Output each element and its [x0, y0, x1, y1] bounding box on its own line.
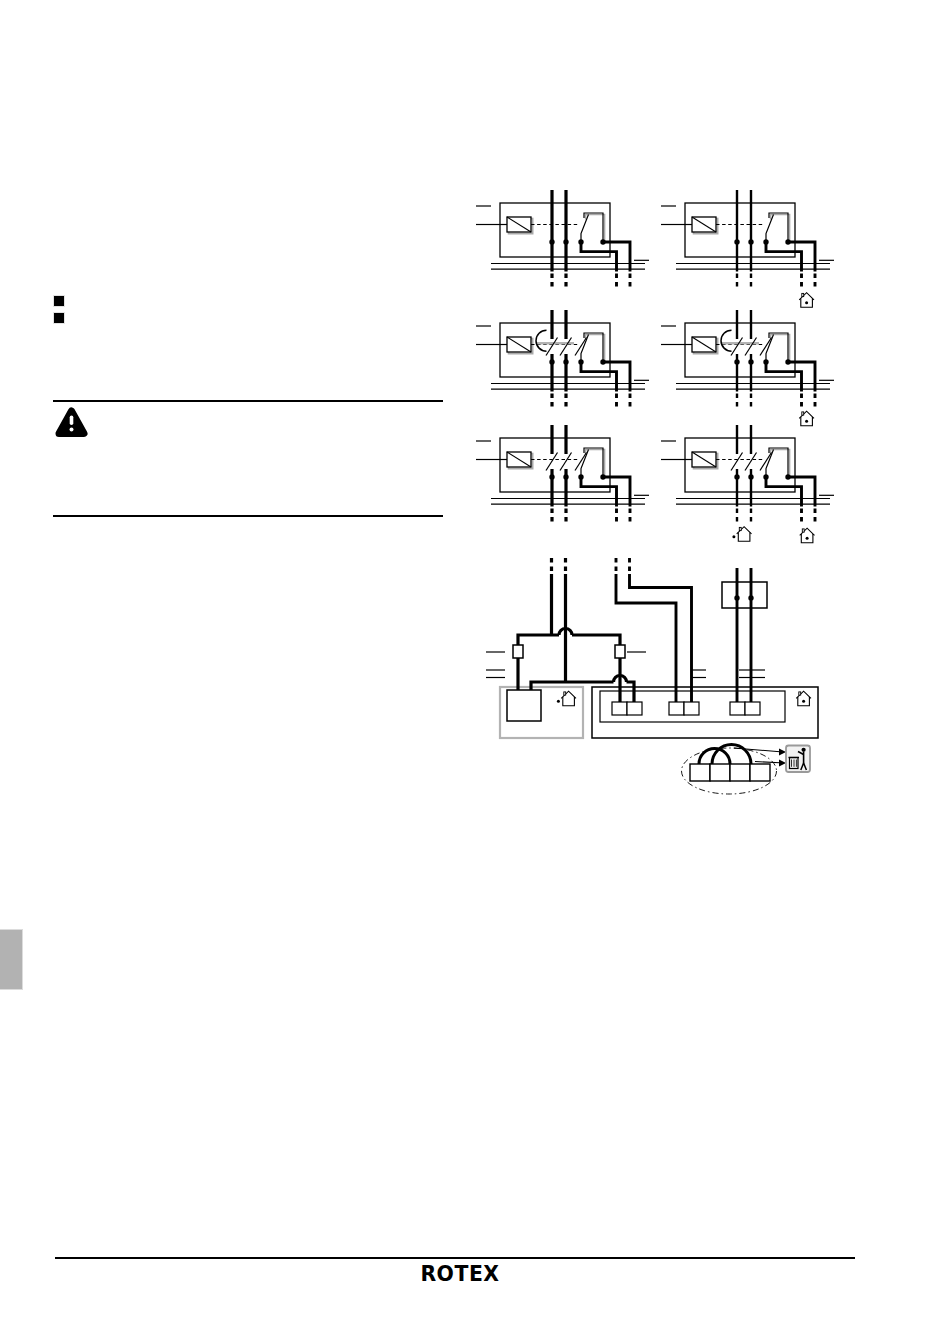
manual-page: ROTEX	[0, 0, 950, 1344]
terminal-pairs	[612, 702, 760, 715]
control-module	[507, 690, 541, 721]
relay-diagram-row2-left	[476, 310, 649, 410]
house-icon-dot-left	[557, 691, 576, 706]
dispose-in-trash-icon	[786, 746, 810, 773]
jumper-disposal-note	[682, 745, 811, 794]
relay-diagram-row1-left	[476, 190, 649, 290]
house-icon	[796, 691, 811, 706]
house-icon	[799, 411, 814, 426]
relay-diagram-row1-right	[661, 190, 834, 290]
wire-jumpers	[699, 745, 751, 764]
fuse	[513, 645, 523, 658]
wires	[518, 558, 751, 702]
house-icon	[800, 528, 815, 543]
relay-diagram-row2-right	[661, 310, 834, 410]
junction-dot	[748, 595, 753, 600]
relay-diagram-row3-right	[661, 425, 834, 525]
page-artwork	[0, 0, 950, 1344]
junction-dot	[734, 595, 739, 600]
junction-box	[722, 582, 767, 608]
terminal-row	[690, 764, 770, 781]
house-icon-dot-left	[732, 527, 751, 542]
main-wiring-diagram	[486, 558, 818, 738]
warning-triangle-icon	[59, 411, 84, 434]
house-icon	[799, 293, 814, 308]
relay-diagram-row3-left	[476, 425, 649, 525]
fuse	[615, 645, 625, 658]
